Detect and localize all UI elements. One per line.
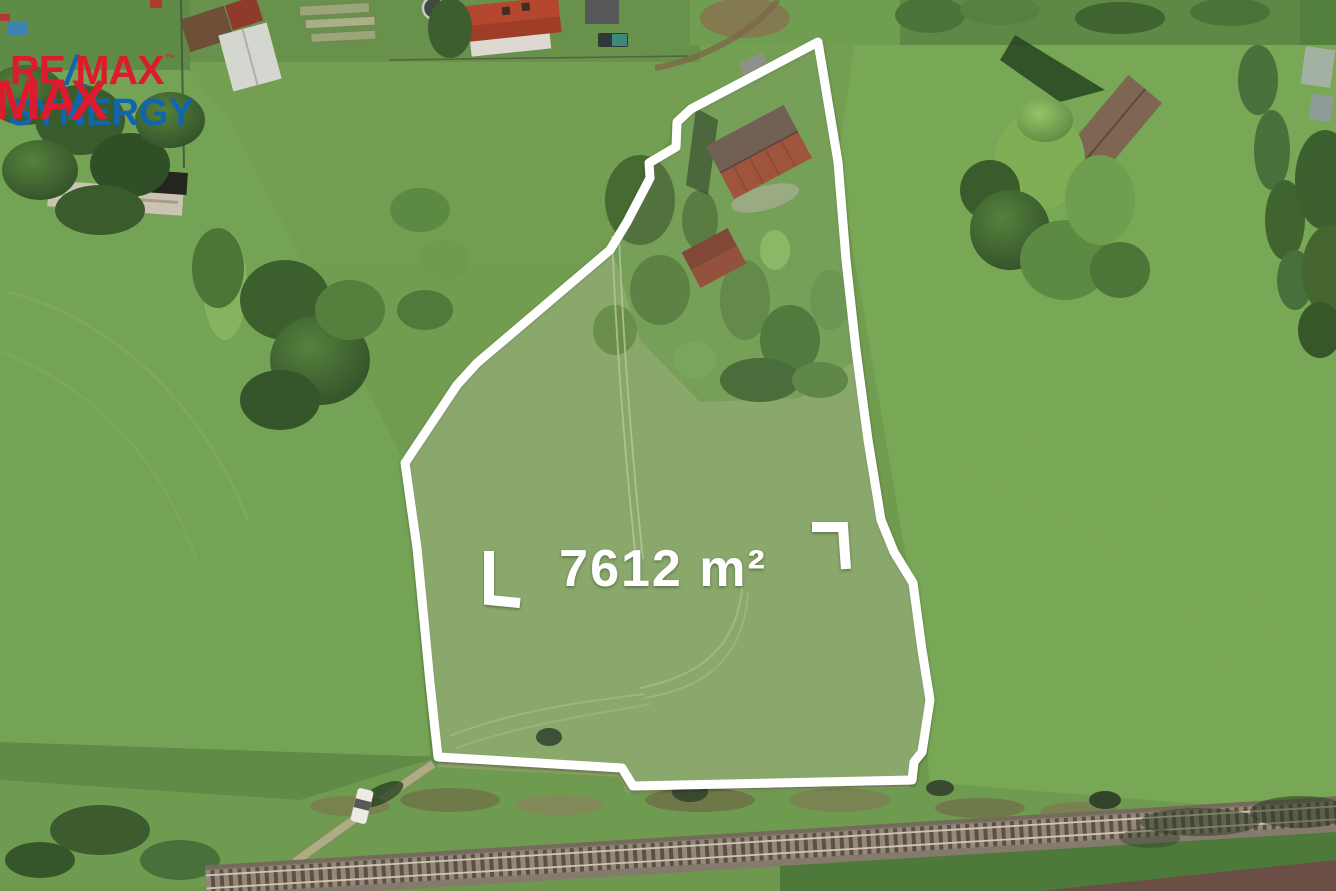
greenhouse-right-edge-2	[1308, 94, 1333, 123]
logo-slash-icon: /	[65, 47, 75, 93]
tree-by-house	[428, 0, 472, 58]
garden-pool	[8, 22, 28, 36]
area-label: 7612 m²	[559, 540, 767, 598]
garden-beds	[299, 2, 376, 43]
remax-watermark: SYNERGY MA/X RE/MAX™	[8, 50, 248, 150]
trademark-symbol: ™	[164, 53, 174, 65]
remax-wordmark: RE/MAX™	[10, 50, 173, 91]
greenhouse-right-edge	[1301, 46, 1336, 88]
aerial-property-photo: 7612 m² SYNERGY MA/X RE/MAX™	[0, 0, 1336, 891]
gray-shed	[585, 0, 619, 24]
